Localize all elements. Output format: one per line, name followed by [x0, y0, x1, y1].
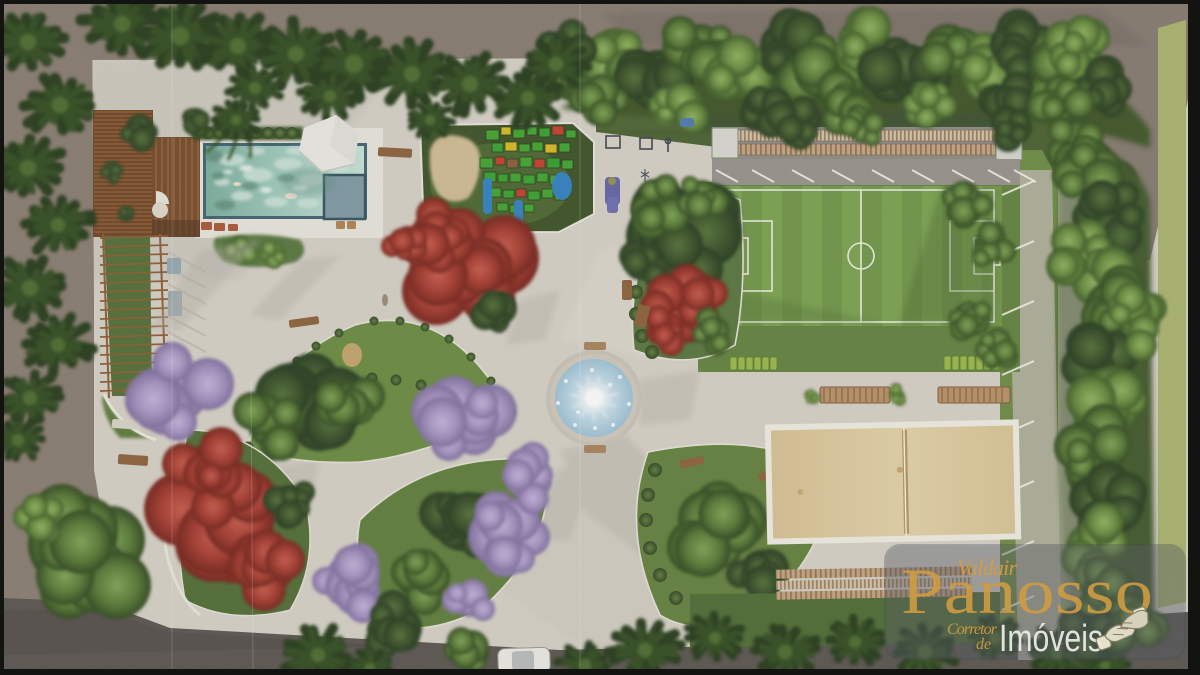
svg-text:de: de — [976, 636, 991, 653]
svg-text:Imóveis: Imóveis — [999, 618, 1103, 660]
